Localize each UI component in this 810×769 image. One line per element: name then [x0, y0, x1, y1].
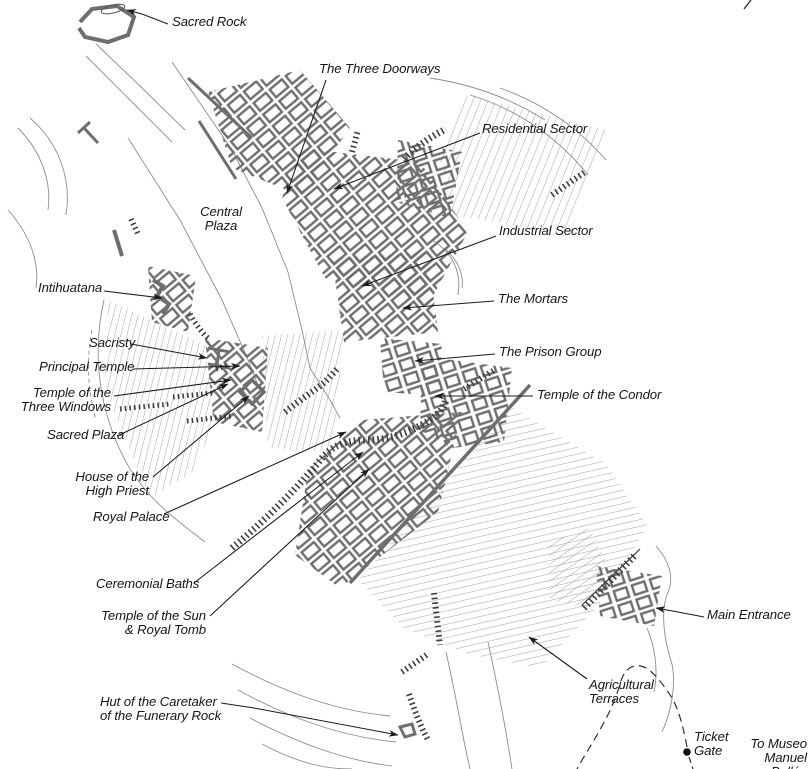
leader-caretaker: [221, 703, 398, 735]
label-agricultural: Agricultural Terraces: [589, 678, 654, 706]
label-industrial-sector: Industrial Sector: [499, 224, 593, 238]
label-central-plaza: Central Plaza: [189, 205, 253, 233]
label-intihuatana: Intihuatana: [38, 281, 102, 295]
label-temple-of-condor: Temple of the Condor: [537, 388, 661, 402]
label-sacristy: Sacristy: [89, 336, 135, 350]
label-caretaker-hut: Hut of the Caretaker of the Funerary Roc…: [100, 695, 221, 723]
label-sun-tomb: Temple of the Sun & Royal Tomb: [101, 609, 206, 637]
label-principal-temple: Principal Temple: [39, 360, 134, 374]
map-canvas: [0, 0, 810, 769]
label-high-priest: House of the High Priest: [75, 470, 149, 498]
label-ceremonial-baths: Ceremonial Baths: [96, 577, 199, 591]
label-to-museo: To Museo Manuel Ballón: [750, 737, 807, 769]
ticket-gate-dot-icon: [683, 748, 691, 756]
label-prison-group: The Prison Group: [499, 345, 601, 359]
label-sacred-plaza: Sacred Plaza: [47, 428, 124, 442]
label-sacred-rock: Sacred Rock: [172, 15, 246, 29]
label-ticket-gate: Ticket Gate: [694, 730, 728, 758]
label-three-windows: Temple of the Three Windows: [21, 386, 111, 414]
label-main-entrance: Main Entrance: [707, 608, 791, 622]
label-residential-sector: Residential Sector: [482, 122, 587, 136]
label-three-doorways: The Three Doorways: [319, 62, 440, 76]
label-the-mortars: The Mortars: [498, 292, 568, 306]
label-royal-palace: Royal Palace: [93, 510, 170, 524]
machu-picchu-site-map: Sacred Rock The Three Doorways Residenti…: [0, 0, 810, 769]
